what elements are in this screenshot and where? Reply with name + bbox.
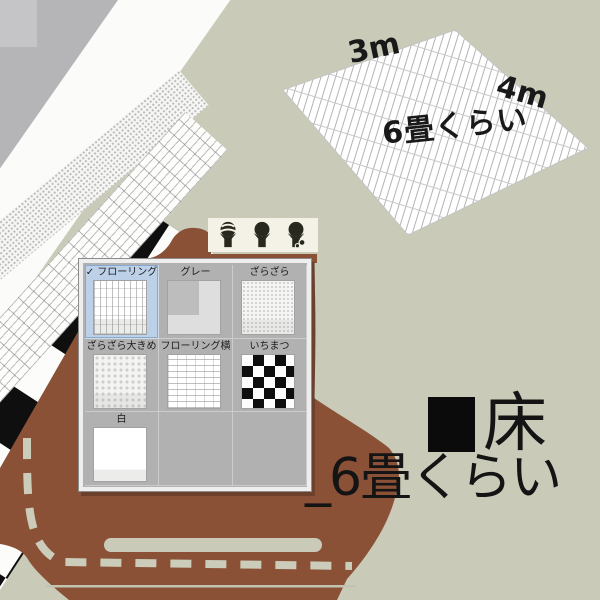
- material-settings-tool-button[interactable]: [284, 221, 310, 249]
- textured-material-tool-button[interactable]: [216, 221, 242, 249]
- hand-with-ball-and-gear-icon: [284, 221, 308, 249]
- palette-item-label: ざらざら大きめ: [85, 340, 158, 353]
- palette-item-gray[interactable]: グレー: [159, 265, 233, 339]
- rough-swatch: [241, 280, 295, 335]
- palette-item-label: グレー: [159, 266, 232, 279]
- check-icon: ✓: [86, 267, 94, 278]
- palette-item-rough[interactable]: ざらざら: [233, 265, 307, 339]
- canvas-stage: 3m 4m 6畳くらい: [0, 0, 600, 600]
- material-palette-window: ✓ フローリング グレー ざらざら ざらざら大きめ フローリング横 いちまつ: [78, 258, 312, 492]
- palette-item-flooring-horizontal[interactable]: フローリング横: [159, 339, 233, 413]
- plain-material-tool-button[interactable]: [250, 221, 276, 249]
- palette-item-label: ざらざら: [233, 266, 306, 279]
- palette-empty-cell: [159, 412, 233, 486]
- floor-heading-text: 床: [483, 392, 547, 456]
- palette-item-flooring[interactable]: ✓ フローリング: [85, 265, 159, 339]
- floor-heading-square: [428, 397, 475, 452]
- palette-item-white[interactable]: 白: [85, 412, 159, 486]
- gray-swatch: [167, 280, 221, 335]
- hand-with-striped-ball-icon: [216, 221, 240, 249]
- checkered-swatch: [241, 354, 295, 409]
- hem-line: [46, 585, 356, 588]
- palette-item-label: いちまつ: [233, 340, 306, 353]
- palette-item-label: 白: [85, 413, 158, 426]
- floor-heading: 床: [428, 392, 547, 456]
- white-swatch: [93, 427, 147, 482]
- palette-empty-cell: [233, 412, 307, 486]
- palette-item-label: ✓ フローリング: [85, 266, 158, 279]
- flooring-swatch: [93, 280, 147, 335]
- material-palette-grid: ✓ フローリング グレー ざらざら ざらざら大きめ フローリング横 いちまつ: [85, 265, 305, 486]
- material-toolbar: [208, 218, 318, 252]
- palette-item-rough-large[interactable]: ざらざら大きめ: [85, 339, 159, 413]
- rough-large-swatch: [93, 354, 147, 409]
- notch-bar: [104, 538, 322, 552]
- flooring-horizontal-swatch: [167, 354, 221, 409]
- floor-subheading: _6畳くらい: [305, 452, 560, 504]
- palette-item-label: フローリング横: [159, 340, 232, 353]
- hand-with-ball-icon: [250, 221, 274, 249]
- palette-item-checkered[interactable]: いちまつ: [233, 339, 307, 413]
